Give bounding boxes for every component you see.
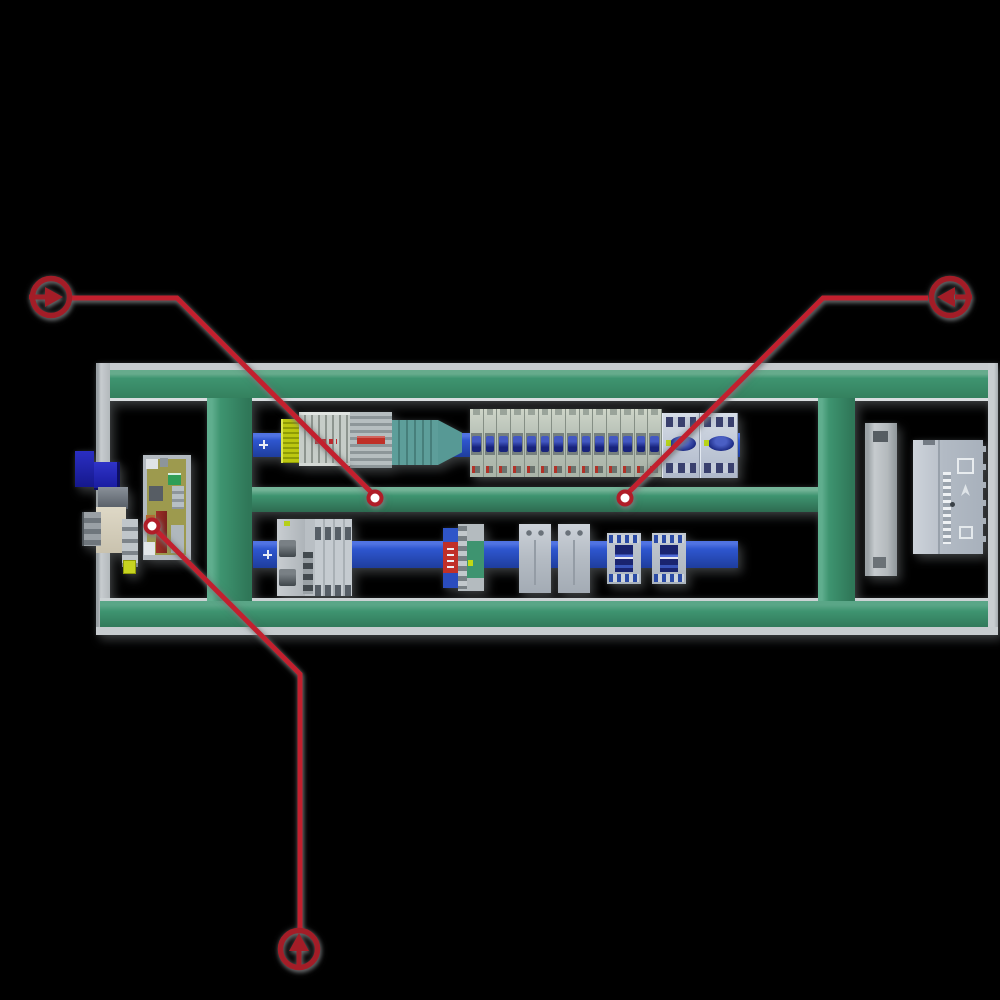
arrow-up-icon: [289, 933, 309, 968]
callout-line-right: [625, 298, 928, 496]
nav-button-right[interactable]: [29, 279, 70, 316]
nav-button-left[interactable]: [932, 279, 973, 316]
callout-target-dot: [146, 520, 159, 533]
nav-button-up[interactable]: [281, 931, 318, 969]
callout-line-bottom: [152, 526, 300, 929]
callout-line-left: [72, 298, 375, 496]
callout-target-dot: [369, 492, 382, 505]
annotation-overlay: [0, 0, 1000, 1000]
panel-scene: [0, 0, 1000, 1000]
callout-target-dots: [146, 492, 632, 533]
callout-lines: [72, 298, 928, 929]
callout-markers: [29, 279, 972, 969]
callout-target-dot: [619, 492, 632, 505]
